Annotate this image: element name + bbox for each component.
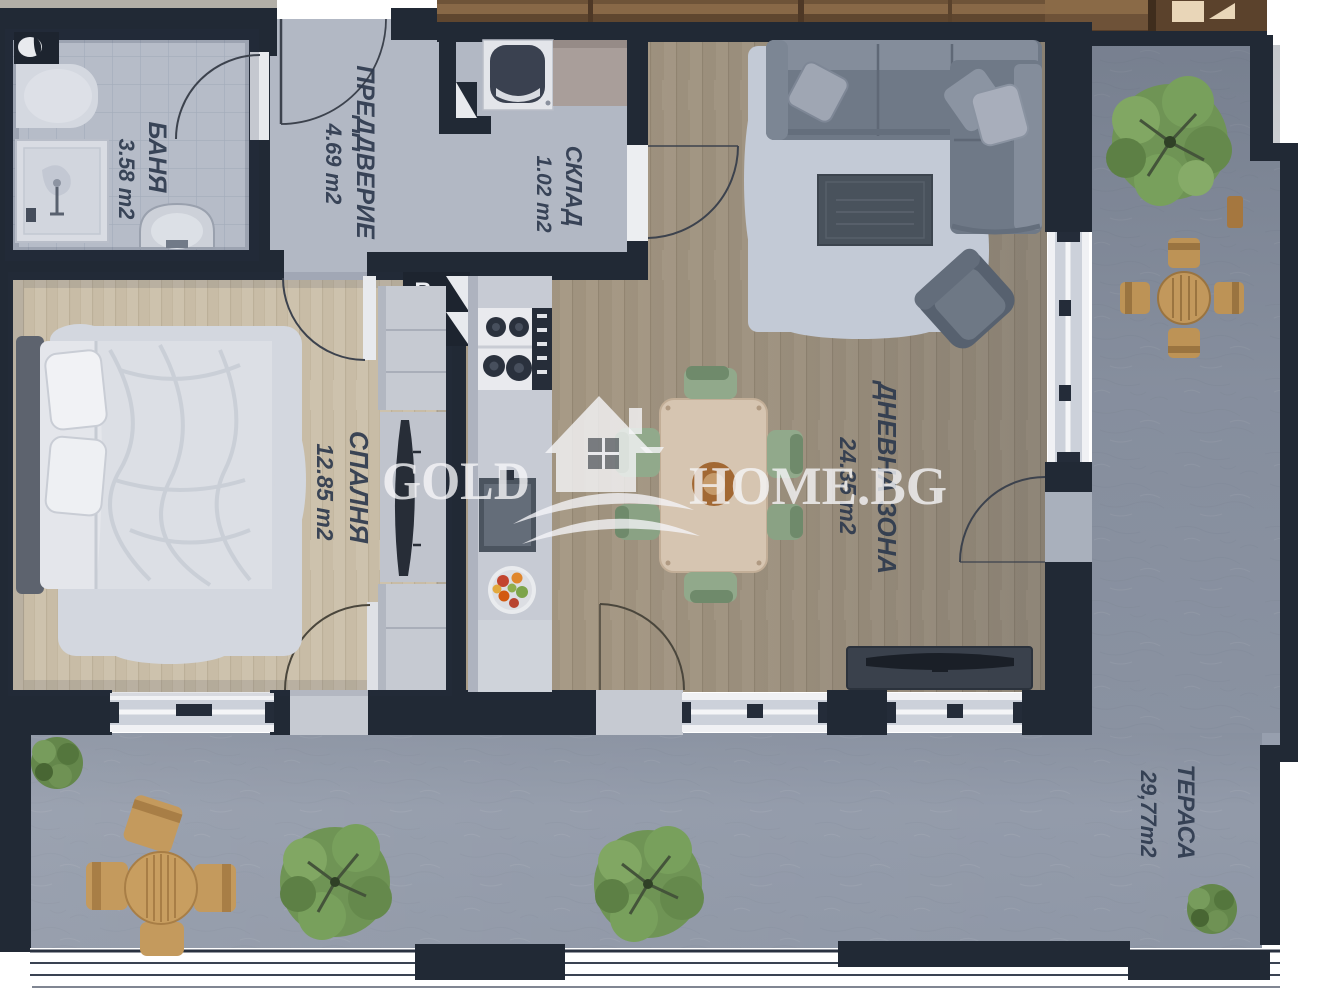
svg-text:29,77m2: 29,77m2 <box>1136 770 1161 859</box>
svg-text:3.58 m2: 3.58 m2 <box>114 139 139 220</box>
svg-text:ТЕРАСА: ТЕРАСА <box>1172 764 1199 859</box>
svg-text:СКЛАД: СКЛАД <box>561 146 587 227</box>
svg-text:1.02 m2: 1.02 m2 <box>532 155 555 232</box>
svg-text:СПАЛНЯ: СПАЛНЯ <box>344 431 374 544</box>
svg-text:12.85 m2: 12.85 m2 <box>312 443 338 540</box>
svg-text:HOME.BG: HOME.BG <box>689 456 947 516</box>
svg-text:ПРЕДДВЕРИЕ: ПРЕДДВЕРИЕ <box>351 65 379 240</box>
svg-text:GOLD: GOLD <box>382 451 530 511</box>
svg-text:4.69 m2: 4.69 m2 <box>321 123 346 205</box>
svg-text:БАНЯ: БАНЯ <box>143 121 171 193</box>
